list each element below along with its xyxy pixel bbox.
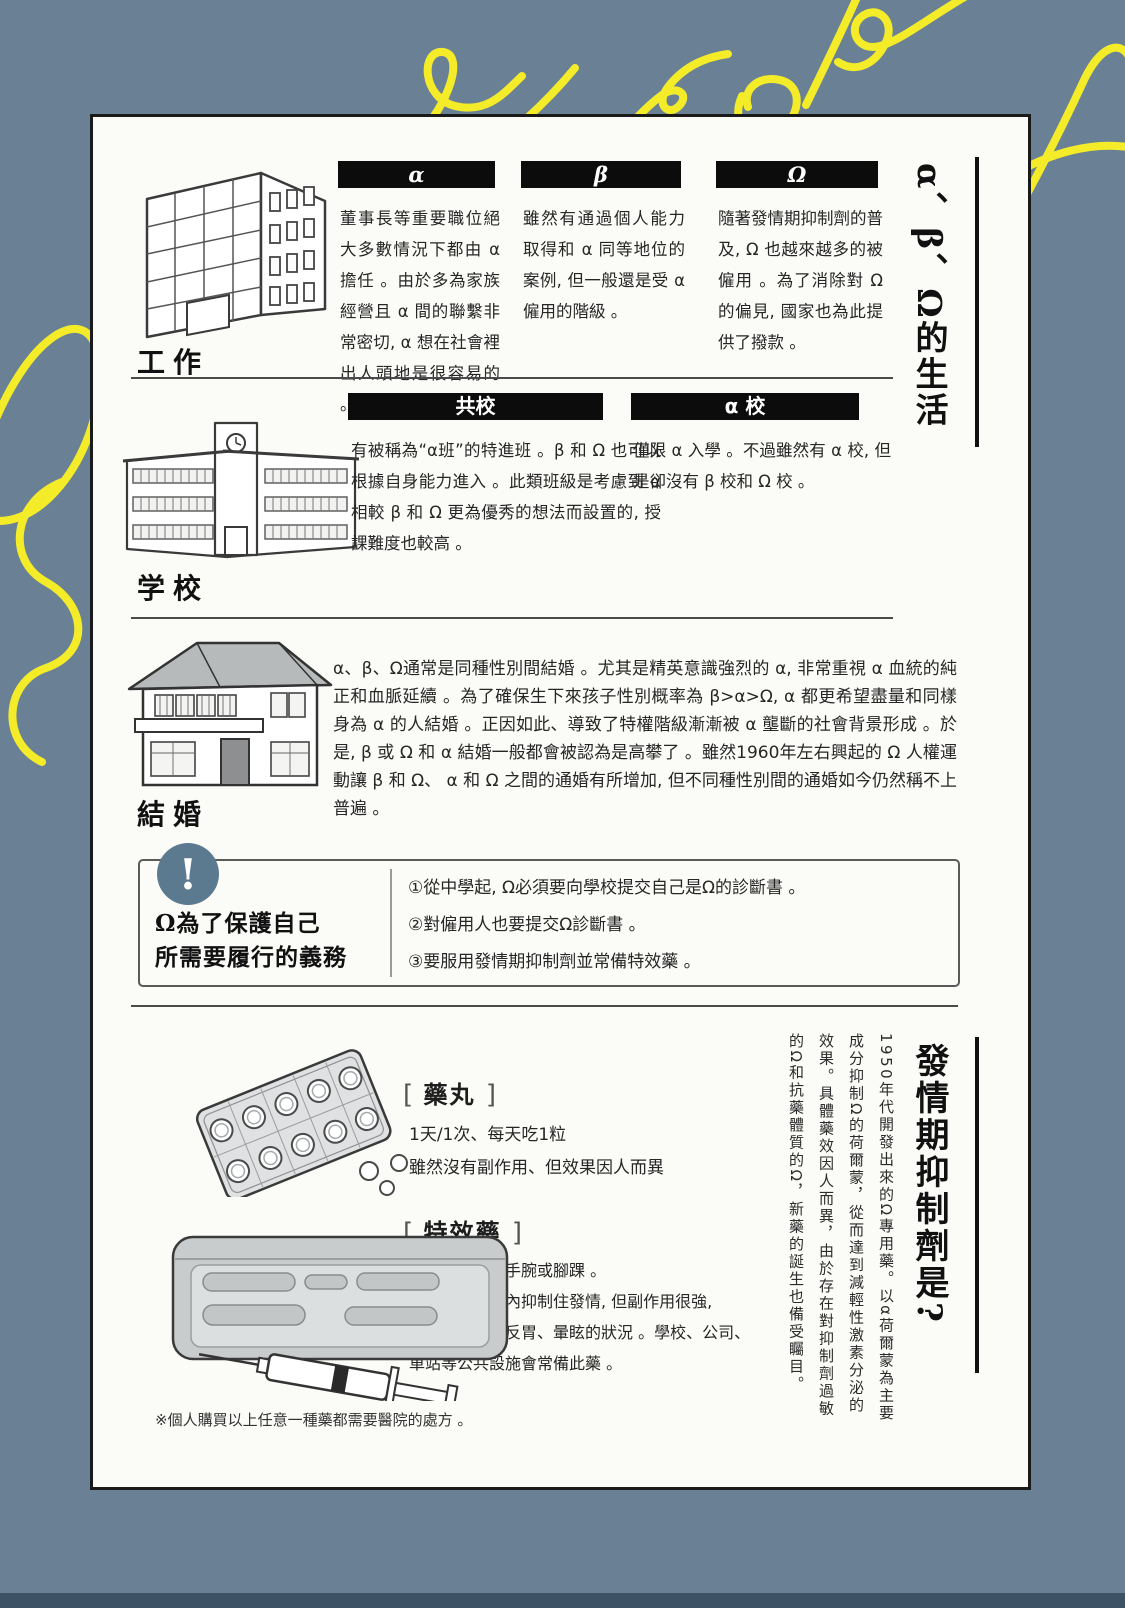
obligations-title-line2: 所需要履行的義務 [155,941,347,975]
obligation-item-3: ③要服用發情期抑制劑並常備特效藥 。 [408,944,948,981]
obligation-item-1: ①從中學起, Ω必須要向學校提交自己是Ω的診斷書 。 [408,870,948,907]
divider-work-school [131,377,893,379]
school-building-illustration [119,409,364,567]
pill-bracket-open: [ [403,1080,413,1110]
obligations-title-line1: Ω為了保護自己 [155,907,347,941]
coed-school-header-bar: 共校 [348,393,603,420]
house-illustration [121,627,339,795]
omega-header-bar: Ω [716,161,878,188]
divider-suppressant [131,1005,958,1007]
obligations-divider [390,869,392,977]
suppressant-body-vertical: 1950年代開發出來的Ω專用藥。以α荷爾蒙為主要成分抑制Ω的荷爾蒙，從而達到減輕… [743,1033,901,1429]
marriage-section-label: 結婚 [137,793,209,833]
omega-header-label: Ω [788,162,807,187]
alpha-header-bar: α [338,161,495,188]
coed-school-text: 有被稱為“α班”的特進班 。β 和 Ω 也可以根據自身能力進入 。此類班級是考慮… [351,435,661,559]
obligations-title: Ω為了保護自己 所需要履行的義務 [155,907,347,975]
work-alpha-text: 董事長等重要職位絕大多數情況下都由 α 擔任 。由於多為家族經營且 α 間的聯繫… [340,203,500,420]
pill-sheet-illustration [173,1045,418,1197]
divider-school-marriage [131,617,893,619]
marriage-text: α、β、Ω通常是同種性別間結婚 。尤其是精英意識強烈的 α, 非常重視 α 血統… [333,655,957,823]
alpha-school-header-label: α 校 [725,394,766,418]
alpha-school-text: 僅限 α 入學 。不過雖然有 α 校, 但是卻沒有 β 校和 Ω 校 。 [633,435,891,497]
alert-icon-glyph: ! [179,850,197,899]
syringe-case-illustration [145,1229,535,1401]
suppressant-title-rule [975,1037,979,1373]
school-section-label: 学校 [137,567,209,607]
coed-school-header-label: 共校 [456,394,496,418]
page: { "page": { "bg_color": "#698095", "card… [0,0,1125,1608]
alpha-school-header-bar: α 校 [631,393,859,420]
office-building-illustration [129,157,335,349]
obligation-item-2: ②對僱用人也要提交Ω診斷書 。 [408,907,948,944]
work-omega-text: 隨著發情期抑制劑的普及, Ω 也越來越多的被僱用 。為了消除對 Ω 的偏見, 國… [718,203,883,358]
pill-bracket-close: ] [486,1080,496,1110]
prescription-note: ※個人購買以上任意一種藥都需要醫院的處方 。 [155,1409,472,1430]
pill-heading: [ 藥丸 ] [403,1075,496,1110]
info-page-card: 工作 α 董事長等重要職位絕大多數情況下都由 α 擔任 。由於多為家族經營且 α… [90,114,1031,1490]
alert-icon: ! [157,843,219,905]
beta-header-bar: β [521,161,681,188]
page-bottom-edge [0,1593,1125,1608]
life-title-rule [975,157,979,447]
beta-header-label: β [594,162,608,187]
obligations-list: ①從中學起, Ω必須要向學校提交自己是Ω的診斷書 。 ②對僱用人也要提交Ω診斷書… [408,870,948,981]
suppressant-title: 發情期抑制劑是? [905,1043,954,1373]
alpha-header-label: α [408,162,424,187]
pill-heading-label: 藥丸 [424,1081,476,1109]
work-section-label: 工作 [137,341,209,381]
work-beta-text: 雖然有通過個人能力取得和 α 同等地位的案例, 但一般還是受 α 僱用的階級 。 [523,203,685,327]
life-section-title: α、β、Ω的生活 [905,163,953,455]
